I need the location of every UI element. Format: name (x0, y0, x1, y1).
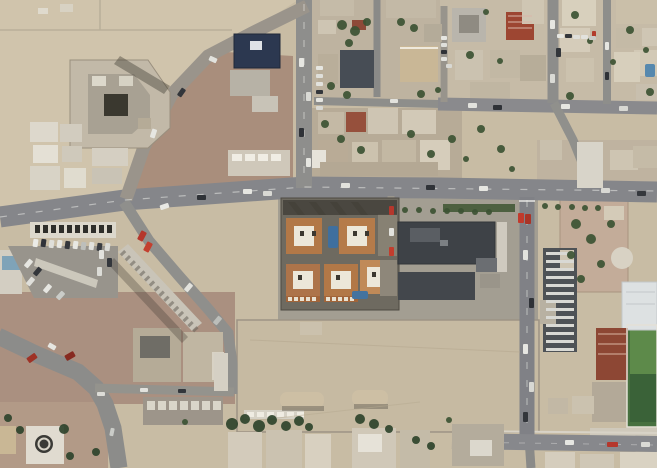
light-slab-building (497, 222, 507, 272)
shop-door (99, 225, 104, 233)
navy-roof-building-skylight (250, 41, 262, 50)
tree (444, 208, 450, 214)
vehicle (441, 43, 447, 47)
bottom-villa (266, 430, 302, 468)
balcony-mark (332, 297, 336, 301)
shop-door (107, 225, 112, 233)
dark-office-rooftop-unit (410, 228, 440, 242)
warehouse-roof-stripe (546, 308, 574, 311)
vehicle (306, 92, 311, 101)
tree (571, 11, 579, 19)
bottom-right-villa (620, 452, 657, 468)
tree (16, 426, 24, 434)
tree (427, 150, 435, 158)
vehicle (479, 186, 488, 191)
tree (385, 425, 393, 433)
vehicle (263, 191, 272, 196)
tree (571, 219, 581, 229)
vehicle (316, 66, 323, 70)
roadside-building (572, 396, 594, 414)
block-building (424, 24, 442, 42)
bottom-villa (228, 432, 262, 468)
vehicle (446, 64, 452, 68)
vehicle (178, 389, 186, 393)
courtyard-circle-feature (611, 247, 633, 269)
white-villa (92, 148, 128, 166)
compound-annex (380, 260, 397, 296)
warehouse-roof-stripe (546, 292, 574, 295)
sports-field-lower (630, 374, 657, 422)
block-building (520, 55, 546, 81)
swimming-pool (328, 226, 338, 248)
tree (92, 448, 100, 456)
vehicle (299, 58, 304, 67)
vehicle (441, 50, 447, 54)
satellite-image (0, 0, 657, 468)
vehicle (441, 36, 447, 40)
vehicle (518, 213, 524, 223)
shop-unit-mark (213, 401, 221, 410)
vehicle (637, 191, 646, 196)
row-building-mark (271, 154, 281, 161)
warehouse-roof-stripe (546, 284, 574, 287)
vehicle (605, 42, 609, 50)
vehicle (557, 34, 564, 38)
bottom-right-villa (545, 452, 575, 468)
upper-right-road-narrow (314, 101, 440, 104)
balcony-mark (338, 297, 342, 301)
block-building (616, 0, 657, 24)
bottom-building (400, 430, 430, 468)
tree (472, 209, 478, 215)
tree (483, 9, 489, 15)
tree (610, 59, 616, 65)
tree (397, 18, 405, 26)
white-villa (64, 168, 86, 188)
tree (577, 275, 585, 283)
vehicle (316, 82, 323, 86)
shop-unit-mark (180, 401, 188, 410)
vehicle (316, 106, 323, 110)
balcony-mark (312, 297, 316, 301)
tree (337, 135, 345, 143)
villa-white-roof (331, 271, 351, 289)
warehouse-roof-stripe (546, 348, 574, 351)
sand-lot-kiosk (300, 322, 322, 335)
tree (305, 423, 313, 431)
tree (497, 145, 505, 153)
courtyard-building-roof (119, 76, 133, 86)
tree (497, 58, 503, 64)
tree (466, 51, 474, 59)
warehouse-roof-stripe (546, 316, 574, 319)
block-building (402, 110, 436, 134)
vehicle (99, 250, 104, 259)
balcony-mark (294, 297, 298, 301)
shop-door (59, 225, 64, 233)
tree (327, 82, 335, 90)
white-units-building (577, 142, 603, 188)
villa-window (312, 231, 316, 236)
tree (646, 88, 654, 96)
block-building (320, 0, 354, 16)
tree (643, 47, 649, 53)
swimming-pool (645, 64, 655, 77)
block-building (318, 20, 336, 34)
vehicle (390, 99, 398, 103)
bottom-villa-southeast-roof (358, 434, 382, 452)
tree (626, 26, 634, 34)
white-villa (92, 168, 122, 184)
balcony-mark (326, 297, 330, 301)
shop-unit-mark (147, 401, 155, 410)
row-building-mark (258, 154, 268, 161)
vehicle (565, 34, 572, 38)
vehicle (468, 103, 477, 108)
vehicle (573, 35, 580, 39)
white-flat-building (622, 282, 657, 330)
shop-unit-mark (191, 401, 199, 410)
white-villa (30, 166, 60, 190)
shop-door (83, 225, 88, 233)
bottom-compound-inner (470, 440, 492, 456)
tree (66, 452, 74, 460)
vehicle (529, 298, 534, 308)
vehicle (556, 48, 561, 57)
vehicle (619, 106, 628, 111)
tree (337, 20, 347, 30)
block-building (490, 50, 520, 78)
corner-building (0, 426, 16, 454)
shop-door (51, 225, 56, 233)
desert-shed (38, 8, 48, 14)
warehouse-roof-stripe (546, 300, 574, 303)
vehicle (316, 74, 323, 78)
bottom-left-building-a-roof (140, 336, 170, 358)
tree (448, 135, 456, 143)
desert-shed (60, 4, 73, 12)
row-building-mark (232, 154, 242, 161)
swimming-pool (352, 291, 368, 299)
roadside-building-row-center (320, 162, 438, 176)
tree (597, 260, 605, 268)
shop-unit-mark (202, 401, 210, 410)
vehicle (581, 35, 588, 39)
tree (435, 87, 441, 93)
white-row-mark (257, 412, 264, 417)
block-building (560, 28, 590, 52)
vehicle (493, 105, 502, 110)
tree (321, 120, 329, 128)
vehicle (389, 228, 394, 236)
tree (463, 156, 469, 162)
tree (486, 209, 492, 215)
tree (402, 207, 408, 213)
tree (566, 92, 574, 100)
vehicle (107, 258, 112, 267)
vehicle (97, 267, 102, 276)
courtyard-building-court (104, 94, 128, 116)
vehicle (306, 158, 311, 167)
tree (509, 166, 515, 172)
gray-building (252, 96, 278, 112)
tree (477, 125, 485, 133)
tree (345, 39, 353, 47)
red-brown-building (346, 112, 366, 132)
parking-shade-canopy (280, 392, 324, 408)
school-annex (592, 382, 626, 422)
tree (586, 234, 596, 244)
vehicle (197, 195, 206, 200)
satellite-map-view[interactable] (0, 0, 657, 468)
bottom-villa (305, 434, 331, 468)
tree (182, 419, 188, 425)
vehicle (426, 185, 435, 190)
block-building (540, 140, 562, 160)
tree (363, 18, 371, 26)
block-building (368, 108, 398, 134)
warehouse-roof-stripe (546, 260, 574, 263)
tree (582, 205, 588, 211)
villa-window (298, 275, 302, 280)
canopy-shadow (282, 406, 324, 411)
warehouse-roof-stripe (546, 324, 574, 327)
vehicle (525, 214, 531, 224)
white-villa (62, 146, 82, 162)
tree (355, 414, 365, 424)
block-building (386, 0, 436, 18)
courtyard-building-annex (138, 118, 151, 129)
white-vertical-building (214, 353, 228, 391)
white-villa (30, 122, 58, 142)
block-building (562, 0, 596, 26)
vehicle (550, 74, 555, 83)
balcony-mark (344, 297, 348, 301)
tree (281, 421, 291, 431)
white-villa (33, 145, 58, 163)
villa-window (300, 231, 304, 236)
tree (4, 414, 12, 422)
warehouse-roof-stripe (546, 276, 574, 279)
villa-window (365, 231, 369, 236)
tree (430, 208, 436, 214)
tree (542, 203, 548, 209)
vehicle (523, 412, 528, 422)
vehicle (589, 36, 596, 40)
tree (458, 208, 464, 214)
tree (607, 220, 615, 228)
block-building (614, 52, 640, 82)
vehicle (523, 250, 528, 260)
office-annex (480, 274, 500, 288)
tree (350, 26, 360, 36)
block-building (633, 146, 657, 168)
vehicle (243, 189, 252, 194)
block-building (642, 28, 657, 46)
sports-field-upper (630, 328, 657, 374)
tree (569, 204, 575, 210)
tree (416, 207, 422, 213)
shop-door (35, 225, 40, 233)
balcony-mark (288, 297, 292, 301)
tree (59, 424, 69, 434)
vehicle (550, 20, 555, 29)
bottom-right-villa (580, 454, 614, 468)
balcony-mark (306, 297, 310, 301)
vehicle (601, 188, 610, 193)
courtyard-small-building (604, 206, 624, 220)
warehouse-roof-stripe (546, 332, 574, 335)
shop-door (75, 225, 80, 233)
vehicle (299, 128, 304, 137)
gray-large-building-court (459, 15, 479, 33)
vehicle (316, 98, 323, 102)
tree (294, 416, 304, 426)
vehicle (441, 57, 447, 61)
tree (407, 130, 415, 138)
vehicle (607, 442, 618, 447)
compound-garage-block (378, 214, 397, 256)
tree (427, 442, 435, 450)
tree (357, 146, 365, 154)
gray-building (230, 70, 270, 96)
tree (240, 414, 250, 424)
vehicle (523, 344, 528, 354)
tree (555, 204, 561, 210)
shop-door (43, 225, 48, 233)
vehicle (97, 392, 105, 396)
vehicle (561, 104, 570, 109)
bottom-left-east-lane (95, 388, 234, 392)
block-building (522, 0, 544, 24)
vehicle (565, 440, 574, 445)
vehicle (140, 388, 148, 392)
vehicle (529, 382, 534, 392)
block-building (470, 82, 510, 98)
dark-roof-building (340, 50, 374, 88)
dark-office-building (398, 272, 475, 300)
villa-window (353, 231, 357, 236)
tree (267, 415, 277, 425)
shop-door (91, 225, 96, 233)
vehicle (316, 90, 323, 94)
courtyard-building-roof (92, 76, 106, 86)
parking-shade-canopy (352, 390, 388, 406)
navy-roof-building (234, 34, 280, 68)
tree (343, 91, 351, 99)
tree (595, 205, 601, 211)
vehicle (641, 442, 650, 447)
tree (412, 436, 420, 444)
balcony-mark (300, 297, 304, 301)
tree (567, 251, 575, 259)
shop-unit-mark (158, 401, 166, 410)
white-row-mark (277, 412, 284, 417)
villa-white-roof (293, 271, 313, 289)
tree (369, 419, 379, 429)
shop-unit-mark (169, 401, 177, 410)
tree (410, 24, 418, 32)
roadside-building (548, 398, 568, 414)
dark-office-rooftop-vent (440, 240, 448, 246)
tree (226, 418, 238, 430)
villa-window (336, 275, 340, 280)
roadside-building-row-west (228, 150, 290, 176)
vehicle (389, 247, 394, 256)
hedge-row (443, 204, 515, 212)
tree (446, 417, 452, 423)
vehicle (389, 206, 394, 215)
small-unit-building (540, 300, 556, 324)
warehouse-roof-stripe (546, 340, 574, 343)
block-building (566, 58, 594, 82)
shop-door (67, 225, 72, 233)
white-villa (60, 124, 82, 142)
vehicle (341, 183, 350, 188)
tan-building (400, 46, 438, 82)
tree (417, 90, 425, 98)
row-building-mark (245, 154, 255, 161)
warehouse-roof-stripe (546, 268, 574, 271)
villa-window (372, 272, 376, 277)
tree (253, 420, 265, 432)
vehicle (605, 72, 609, 80)
